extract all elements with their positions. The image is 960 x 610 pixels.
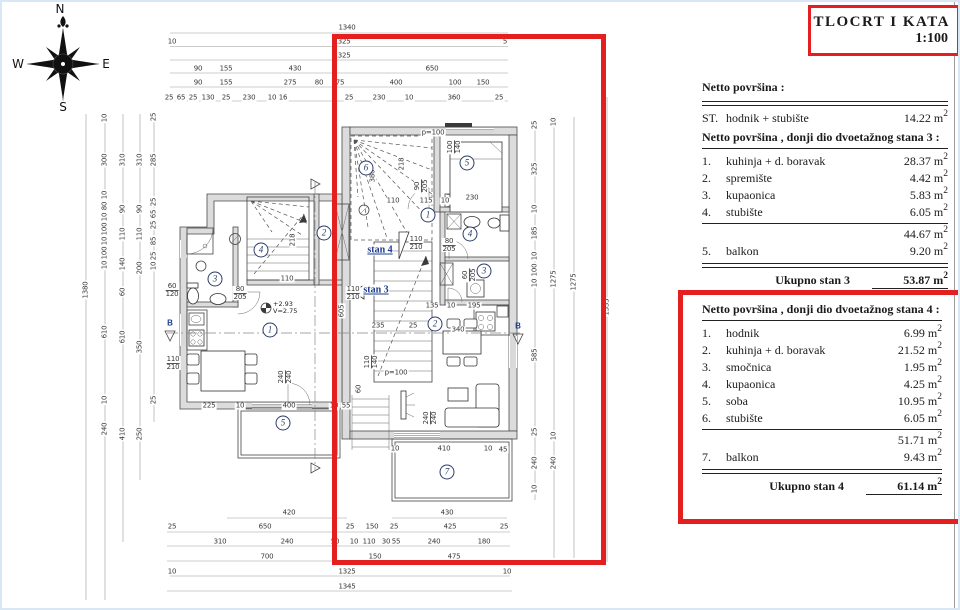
drawing-title: TLOCRT I KATA xyxy=(811,14,957,31)
dimension-label: 240 xyxy=(427,539,442,546)
dimension-label: 10 xyxy=(267,95,278,102)
dimension-label: 50 xyxy=(330,539,341,546)
dimension-label: 218 xyxy=(290,233,297,248)
sheet-border-line xyxy=(954,2,955,610)
dimension-label: 360 xyxy=(447,95,462,102)
divider xyxy=(702,429,942,430)
area-row: Ukupno stan 461.14m2 xyxy=(702,478,942,495)
dimension-label: 110210 xyxy=(166,356,181,370)
dimension-label: 1535 xyxy=(604,297,611,316)
room-number: 2 xyxy=(317,226,332,241)
dimension-label: 25 xyxy=(151,197,158,208)
area-row: 6.stubište6.05m2 xyxy=(702,410,942,427)
title-block: TLOCRT I KATA 1:100 xyxy=(808,5,960,56)
dimension-label: 475 xyxy=(447,554,462,561)
apartment-label: stan 4 xyxy=(366,245,393,256)
dimension-label: 100 xyxy=(448,80,463,87)
dimension-label: 410 xyxy=(120,427,127,442)
room-number: 3 xyxy=(208,272,223,287)
dimension-label: 10 xyxy=(404,95,415,102)
stan4-table: Netto površina , donji dio dvoetažnog st… xyxy=(702,302,942,495)
dimension-label: 25 xyxy=(151,112,158,123)
room-number: 4 xyxy=(463,227,478,242)
dimension-label: 1325 xyxy=(337,569,356,576)
dimension-label: 100 xyxy=(102,246,109,261)
area-row: 7.balkon9.43m2 xyxy=(702,449,942,466)
dimension-label: 10 xyxy=(551,117,558,128)
dimension-label: 150 xyxy=(476,80,491,87)
dimension-label: 10 xyxy=(532,278,539,289)
dimension-label: 80205 xyxy=(442,238,457,252)
dimension-label: 130 xyxy=(201,95,216,102)
room-number: 7 xyxy=(440,465,455,480)
area-row: 44.67m2 xyxy=(702,226,948,243)
dimension-label: 25 xyxy=(221,95,232,102)
divider xyxy=(702,469,942,474)
dimension-label: 10 xyxy=(440,198,451,205)
dimension-label: 10 xyxy=(329,403,340,410)
dimension-label: 80 xyxy=(102,201,109,212)
dimension-label: 16 xyxy=(278,95,289,102)
room-number: 1 xyxy=(421,208,436,223)
furniture-stan3 xyxy=(187,228,257,391)
dimension-label: 150 xyxy=(368,554,383,561)
dimension-label: 300 xyxy=(102,153,109,168)
dimension-label: 110 xyxy=(137,227,144,242)
compass-rose-graphic xyxy=(27,16,99,101)
dimension-label: p=100 xyxy=(421,130,446,137)
dimension-label: 240240 xyxy=(278,370,292,385)
dimension-label: 115 xyxy=(419,198,434,205)
dimension-label: 10 xyxy=(102,395,109,406)
dimension-label: 110 xyxy=(386,198,401,205)
level-marker: +2.93 V=2.75 xyxy=(273,301,297,315)
dimension-label: 60 xyxy=(120,287,127,298)
dimension-label: 100140 xyxy=(447,140,461,155)
area-row: 4.kupaonica4.25m2 xyxy=(702,376,942,393)
dimension-label: 110140 xyxy=(364,355,378,370)
room-number: 3 xyxy=(477,264,492,279)
dimension-label: 1340 xyxy=(337,25,356,32)
area-row: 3.smočnica1.95m2 xyxy=(702,359,942,376)
dimension-label: 25 xyxy=(532,427,539,438)
level-height: V=2.75 xyxy=(273,308,297,315)
dimension-label: 185 xyxy=(532,226,539,241)
dimension-label: 55 xyxy=(341,403,352,410)
dimension-label: 1345 xyxy=(337,584,356,591)
divider xyxy=(702,101,948,106)
apartment-label: stan 3 xyxy=(362,285,389,296)
dimension-label: 195 xyxy=(467,303,482,310)
dimension-label: 10 xyxy=(167,569,178,576)
dimension-label: 410 xyxy=(437,446,452,453)
dimension-label: 100 xyxy=(102,222,109,237)
divider xyxy=(702,263,948,268)
area-row: 3.kupaonica5.83m2 xyxy=(702,187,948,204)
dimension-label: 10 xyxy=(235,403,246,410)
staircase-stan3 xyxy=(247,197,309,280)
dimension-label: 230 xyxy=(465,195,480,202)
dimension-label: 230 xyxy=(372,95,387,102)
dimension-label: 110210 xyxy=(346,286,361,300)
dimension-label: 420 xyxy=(282,510,297,517)
dimension-label: 240240 xyxy=(423,411,437,426)
dimension-label: 25 xyxy=(532,120,539,131)
dimension-label: 25 xyxy=(408,323,419,330)
dimension-label: 200 xyxy=(137,261,144,276)
dimension-label: 135 xyxy=(425,303,440,310)
dimension-label: 585 xyxy=(532,348,539,363)
stan3-header: Netto površina , donji dio dvoetažnog st… xyxy=(702,130,948,149)
dimension-label: 110210 xyxy=(409,236,424,250)
dimension-label: 230 xyxy=(242,95,257,102)
dimension-label: 180 xyxy=(477,539,492,546)
level-marker-symbol xyxy=(261,303,271,313)
dimension-label: 1325 xyxy=(332,39,351,46)
dimension-label: 60120 xyxy=(165,283,180,297)
dimension-label: 10 xyxy=(167,39,178,46)
dimension-label: 10 xyxy=(349,539,360,546)
dimension-label: 10 xyxy=(151,261,158,272)
area-row: 5.soba10.95m2 xyxy=(702,393,942,410)
area-row: 1.hodnik6.99m2 xyxy=(702,325,942,342)
dimension-label: p=100 xyxy=(384,370,409,377)
dimension-label: 1380 xyxy=(83,280,90,299)
dimension-label: 110 xyxy=(280,276,295,283)
stan4-header: Netto površina , donji dio dvoetažnog st… xyxy=(702,302,942,321)
dimension-label: 25 xyxy=(389,524,400,531)
dimension-label: 610 xyxy=(102,325,109,340)
dimension-label: 1275 xyxy=(551,269,558,288)
dimension-label: 60 xyxy=(356,384,363,395)
dimension-label: 610 xyxy=(120,330,127,345)
dimension-label: 10 xyxy=(532,204,539,215)
dimension-label: 310 xyxy=(120,153,127,168)
dimension-label: 425 xyxy=(443,524,458,531)
dimension-label: 100 xyxy=(532,263,539,278)
room-number: 4 xyxy=(254,243,269,258)
dimension-label: 350 xyxy=(137,340,144,355)
dimension-label: 10 xyxy=(446,303,457,310)
dimension-label: 65 xyxy=(151,209,158,220)
dimension-label: 110 xyxy=(362,539,377,546)
dimension-label: 10 xyxy=(532,251,539,262)
dimension-label: 310 xyxy=(137,153,144,168)
dimension-label: 110 xyxy=(120,227,127,242)
dimension-label: 25 xyxy=(167,524,178,531)
dimension-label: 430 xyxy=(440,510,455,517)
dimension-label: 60205 xyxy=(462,268,476,283)
area-row: 4.stubište6.05m2 xyxy=(702,204,948,221)
dimension-label: 235 xyxy=(371,323,386,330)
dimension-label: 240 xyxy=(532,456,539,471)
area-row: ST.hodnik + stubište14.22m2 xyxy=(702,110,948,127)
dimension-label: 240 xyxy=(280,539,295,546)
dimension-label: 45 xyxy=(498,447,509,454)
dimension-label: 10 xyxy=(551,431,558,442)
area-row: 51.71m2 xyxy=(702,432,942,449)
dimension-label: 25 xyxy=(499,524,510,531)
drawing-sheet: N W E S 13401013255132590155430650901552… xyxy=(0,0,960,610)
dimension-label: 25 xyxy=(164,95,175,102)
dimension-label: 650 xyxy=(258,524,273,531)
dimension-label: 25 xyxy=(151,220,158,231)
divider xyxy=(702,223,948,224)
dimension-label: 75 xyxy=(335,80,346,87)
dimension-label: 25 xyxy=(151,395,158,406)
room-number: 6 xyxy=(359,161,374,176)
compass-east-label: E xyxy=(102,57,110,71)
dimension-label: 275 xyxy=(283,80,298,87)
room-number: 2 xyxy=(428,317,443,332)
compass-south-label: S xyxy=(59,100,67,114)
dimension-label: 10 xyxy=(390,446,401,453)
dimension-label: 140 xyxy=(120,257,127,272)
dimension-label: 25 xyxy=(188,95,199,102)
room-number: 1 xyxy=(263,323,278,338)
compass-north-label: N xyxy=(56,2,65,16)
dimension-label: 340 xyxy=(451,327,466,334)
dimension-label: 430 xyxy=(288,66,303,73)
dimension-label: 1275 xyxy=(571,272,578,291)
dimension-label: 25 xyxy=(344,95,355,102)
dimension-label: 155 xyxy=(219,80,234,87)
dimension-label: 25 xyxy=(345,524,356,531)
dimension-label: 10 xyxy=(483,446,494,453)
section-label: B xyxy=(167,319,173,328)
section-label: B xyxy=(515,322,521,331)
dimension-label: 65 xyxy=(176,95,187,102)
dimension-label: 310 xyxy=(213,539,228,546)
dimension-label: 325 xyxy=(532,162,539,177)
area-row: 1.kuhinja + d. boravak28.37m2 xyxy=(702,153,948,170)
area-row: 5.balkon9.20m2 xyxy=(702,243,948,260)
dimension-label: 10 xyxy=(102,113,109,124)
dimension-label: 1325 xyxy=(332,53,351,60)
area-row: 2.kuhinja + d. boravak21.52m2 xyxy=(702,342,942,359)
dimension-label: 55 xyxy=(391,539,402,546)
dimension-label: 10 xyxy=(102,260,109,271)
dimension-label: 155 xyxy=(219,66,234,73)
dimension-label: 80 xyxy=(314,80,325,87)
dimension-label: 25 xyxy=(494,95,505,102)
compass-west-label: W xyxy=(12,57,24,71)
dimension-label: 10 xyxy=(102,190,109,201)
drawing-scale: 1:100 xyxy=(811,31,957,47)
dimension-label: 700 xyxy=(260,554,275,561)
dimension-label: 90205 xyxy=(414,179,428,194)
dimension-label: 5 xyxy=(502,39,508,46)
dimension-label: 605 xyxy=(339,304,346,319)
stan3-table: Netto površina , donji dio dvoetažnog st… xyxy=(702,130,948,289)
dimension-label: 10 xyxy=(532,484,539,495)
dimension-label: 400 xyxy=(389,80,404,87)
dimension-label: 240 xyxy=(102,422,109,437)
summary-header: Netto površina : xyxy=(702,80,948,98)
dimension-label: 400 xyxy=(282,403,297,410)
dimension-label: 10 xyxy=(502,569,513,576)
dimension-label: 250 xyxy=(137,427,144,442)
dimension-label: 285 xyxy=(151,153,158,168)
dimension-label: 90 xyxy=(137,204,144,215)
room-number: 5 xyxy=(460,156,475,171)
dimension-label: 90 xyxy=(120,204,127,215)
dimension-label: 80205 xyxy=(233,286,248,300)
area-row: Ukupno stan 353.87m2 xyxy=(702,272,948,289)
dimension-label: 90 xyxy=(193,80,204,87)
dimension-label: 25 xyxy=(151,251,158,262)
dimension-label: 30 xyxy=(381,539,392,546)
area-row: 2.spremište4.42m2 xyxy=(702,170,948,187)
dimension-label: 218 xyxy=(399,157,406,172)
summary-table: Netto površina : ST.hodnik + stubište14.… xyxy=(702,80,948,127)
dimension-label: 650 xyxy=(425,66,440,73)
dimension-label: 150 xyxy=(365,524,380,531)
dimension-label: 240 xyxy=(551,456,558,471)
dimension-label: 85 xyxy=(151,236,158,247)
dimension-label: 90 xyxy=(193,66,204,73)
dimension-label: 225 xyxy=(202,403,217,410)
room-number: 5 xyxy=(276,416,291,431)
